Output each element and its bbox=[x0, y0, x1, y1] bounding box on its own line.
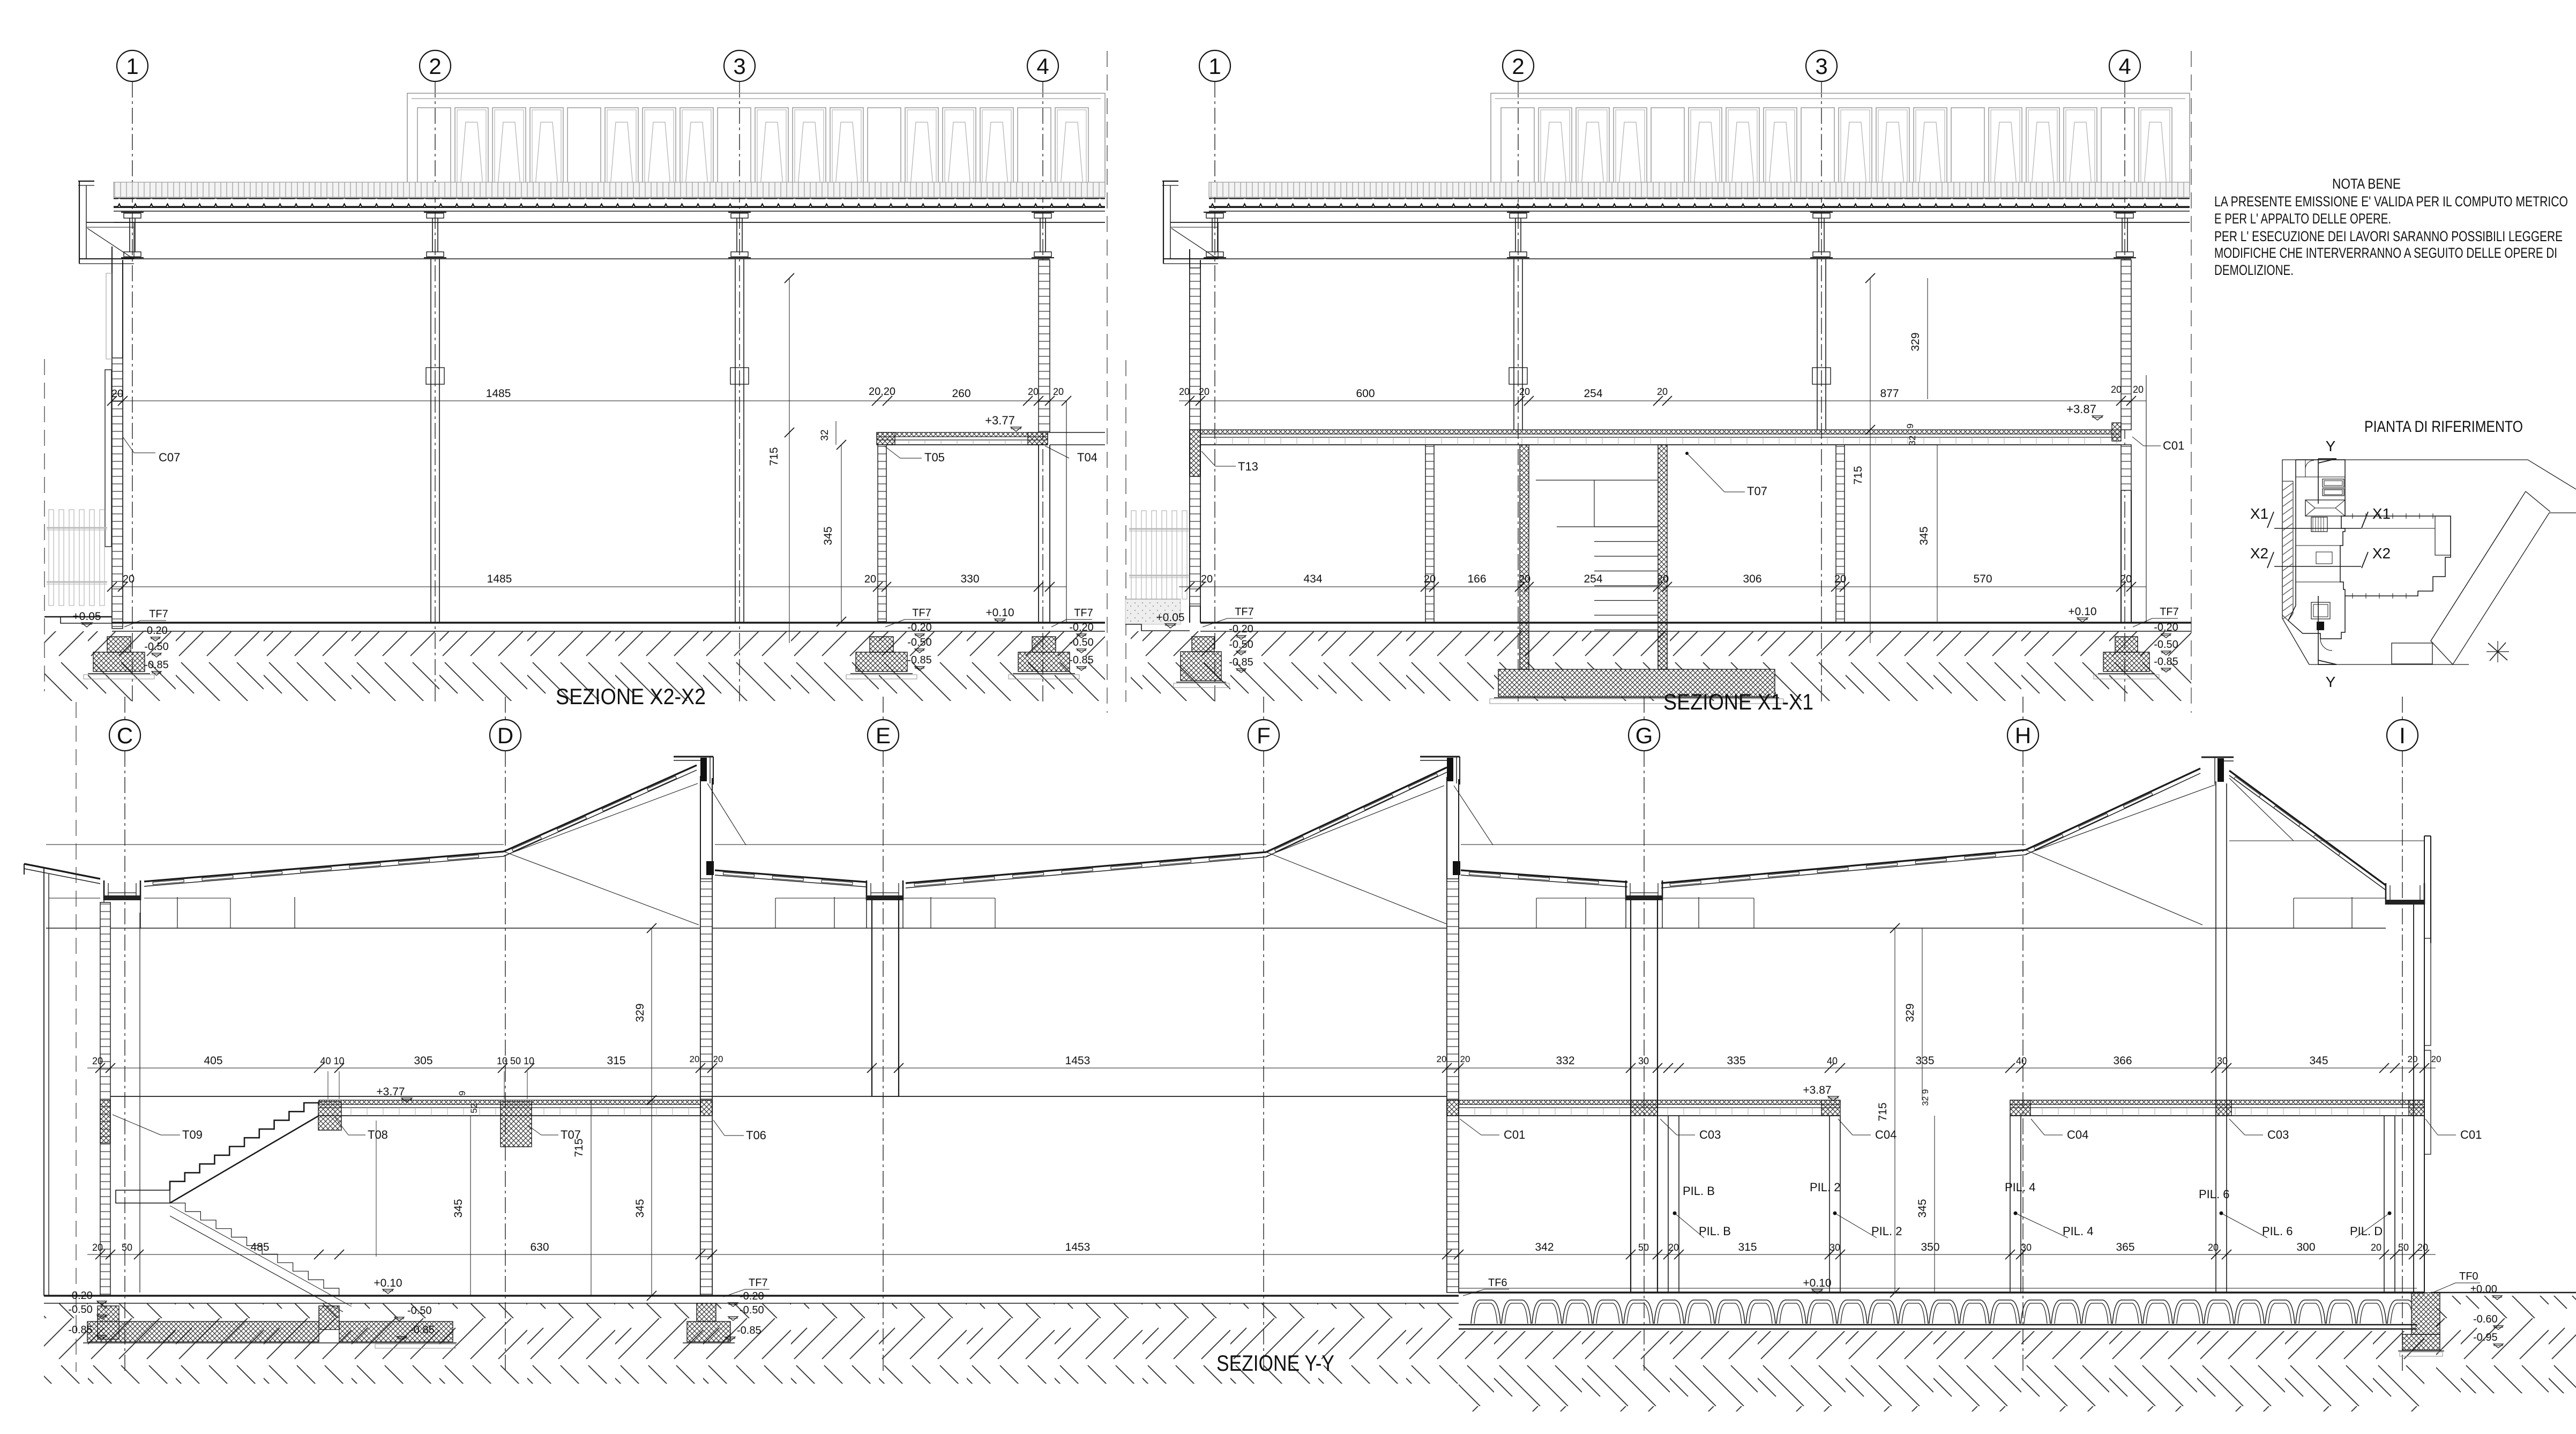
svg-text:10 50 10: 10 50 10 bbox=[497, 1056, 534, 1066]
svg-text:C01: C01 bbox=[2163, 439, 2184, 452]
svg-text:-0.85: -0.85 bbox=[68, 1324, 93, 1336]
svg-text:20: 20 bbox=[92, 1056, 103, 1066]
svg-text:32 9: 32 9 bbox=[1921, 1089, 1930, 1106]
svg-text:20: 20 bbox=[864, 573, 876, 585]
svg-text:30: 30 bbox=[2217, 1056, 2228, 1066]
svg-text:20: 20 bbox=[1657, 573, 1669, 585]
svg-text:50: 50 bbox=[2398, 1242, 2409, 1253]
svg-text:C: C bbox=[117, 723, 133, 748]
svg-text:C04: C04 bbox=[2067, 1128, 2088, 1141]
svg-text:PIL. 2: PIL. 2 bbox=[1810, 1181, 1840, 1194]
svg-text:+0.10: +0.10 bbox=[1803, 1277, 1831, 1289]
svg-text:C03: C03 bbox=[1699, 1128, 1721, 1141]
svg-text:TF0: TF0 bbox=[2459, 1271, 2478, 1282]
svg-text:20: 20 bbox=[111, 388, 123, 400]
svg-text:TF6: TF6 bbox=[1488, 1277, 1507, 1289]
svg-text:-0.50: -0.50 bbox=[907, 637, 932, 648]
svg-text:260: 260 bbox=[952, 387, 970, 400]
svg-text:3: 3 bbox=[1815, 54, 1827, 79]
svg-text:C01: C01 bbox=[2460, 1128, 2482, 1141]
svg-text:-0.50: -0.50 bbox=[407, 1305, 432, 1317]
svg-text:-0.20: -0.20 bbox=[1069, 622, 1094, 633]
svg-text:345: 345 bbox=[634, 1199, 646, 1218]
svg-text:40: 40 bbox=[2016, 1056, 2027, 1066]
svg-text:1485: 1485 bbox=[487, 573, 512, 585]
svg-text:G: G bbox=[1636, 723, 1653, 748]
svg-text:50: 50 bbox=[1638, 1242, 1649, 1253]
svg-text:D: D bbox=[497, 723, 513, 748]
svg-text:TF7: TF7 bbox=[149, 608, 168, 620]
svg-text:TF7: TF7 bbox=[1074, 607, 1093, 619]
svg-text:345: 345 bbox=[2309, 1055, 2328, 1067]
svg-text:20: 20 bbox=[1460, 1054, 1470, 1064]
svg-text:434: 434 bbox=[1303, 573, 1322, 585]
svg-text:TF7: TF7 bbox=[912, 607, 931, 619]
svg-text:MODIFICHE CHE INTERVERRANNO A: MODIFICHE CHE INTERVERRANNO A SEGUITO DE… bbox=[2214, 245, 2557, 261]
svg-text:PIANTA DI RIFERIMENTO: PIANTA DI RIFERIMENTO bbox=[2364, 418, 2523, 436]
svg-text:20: 20 bbox=[1053, 386, 1064, 397]
svg-text:300: 300 bbox=[2296, 1241, 2315, 1253]
svg-text:DEMOLIZIONE.: DEMOLIZIONE. bbox=[2214, 262, 2294, 278]
svg-text:166: 166 bbox=[1467, 573, 1486, 585]
svg-text:-0.20: -0.20 bbox=[143, 625, 168, 637]
svg-text:2: 2 bbox=[1512, 54, 1524, 79]
svg-text:20: 20 bbox=[1201, 573, 1213, 585]
svg-text:C07: C07 bbox=[159, 451, 180, 464]
svg-text:+3.87: +3.87 bbox=[2066, 402, 2096, 416]
svg-text:-0.95: -0.95 bbox=[2473, 1332, 2498, 1343]
svg-text:+0.05: +0.05 bbox=[1156, 611, 1184, 624]
svg-text:+0.10: +0.10 bbox=[985, 607, 1014, 619]
svg-text:4: 4 bbox=[2118, 54, 2131, 79]
svg-text:329: 329 bbox=[1904, 1003, 1916, 1022]
svg-text:TF7: TF7 bbox=[2160, 606, 2179, 618]
svg-text:2: 2 bbox=[429, 54, 441, 79]
svg-text:366: 366 bbox=[2113, 1055, 2132, 1067]
svg-text:T09: T09 bbox=[182, 1128, 203, 1141]
svg-text:3: 3 bbox=[733, 54, 745, 79]
svg-text:52: 52 bbox=[469, 1103, 479, 1114]
svg-text:Y: Y bbox=[2326, 438, 2336, 454]
svg-text:20: 20 bbox=[2371, 1242, 2381, 1253]
svg-text:C04: C04 bbox=[1875, 1128, 1896, 1141]
svg-text:20: 20 bbox=[1519, 573, 1530, 585]
svg-text:20: 20 bbox=[2111, 384, 2122, 395]
svg-text:20: 20 bbox=[1437, 1054, 1447, 1064]
svg-text:T04: T04 bbox=[1077, 451, 1097, 464]
svg-text:1453: 1453 bbox=[1065, 1055, 1091, 1067]
svg-text:32: 32 bbox=[1907, 436, 1917, 446]
svg-text:TF7: TF7 bbox=[1235, 606, 1254, 618]
svg-text:-0.50: -0.50 bbox=[144, 641, 169, 653]
svg-text:306: 306 bbox=[1743, 573, 1761, 585]
svg-text:T13: T13 bbox=[1238, 460, 1258, 473]
svg-text:330: 330 bbox=[960, 573, 979, 585]
svg-text:PIL. B: PIL. B bbox=[1699, 1224, 1731, 1238]
svg-text:570: 570 bbox=[1973, 573, 1992, 585]
svg-text:254: 254 bbox=[1584, 387, 1602, 400]
svg-text:335: 335 bbox=[1727, 1055, 1745, 1067]
svg-text:PIL. 4: PIL. 4 bbox=[2063, 1224, 2093, 1238]
svg-text:20: 20 bbox=[1424, 573, 1436, 585]
svg-text:X1: X1 bbox=[2372, 505, 2391, 522]
svg-text:NOTA BENE: NOTA BENE bbox=[2332, 176, 2401, 192]
svg-text:X1: X1 bbox=[2250, 505, 2268, 522]
svg-text:345: 345 bbox=[1916, 1199, 1929, 1218]
svg-text:315: 315 bbox=[607, 1055, 625, 1067]
svg-text:F: F bbox=[1257, 723, 1271, 748]
svg-text:315: 315 bbox=[1738, 1241, 1757, 1253]
svg-text:20: 20 bbox=[1657, 386, 1668, 397]
svg-text:PIL. D: PIL. D bbox=[2350, 1224, 2383, 1238]
svg-text:PER L' ESECUZIONE DEI LAVORI S: PER L' ESECUZIONE DEI LAVORI SARANNO POS… bbox=[2214, 228, 2563, 244]
svg-text:+0.05: +0.05 bbox=[72, 610, 101, 623]
svg-text:-0.50: -0.50 bbox=[2154, 639, 2178, 651]
svg-text:X2: X2 bbox=[2250, 545, 2268, 562]
svg-text:20,20: 20,20 bbox=[869, 386, 895, 398]
svg-text:-0.60: -0.60 bbox=[2473, 1313, 2498, 1325]
svg-text:9: 9 bbox=[457, 1091, 467, 1095]
svg-text:+3.77: +3.77 bbox=[376, 1086, 405, 1098]
svg-text:20: 20 bbox=[123, 573, 135, 585]
svg-text:630: 630 bbox=[530, 1241, 549, 1253]
svg-text:PIL. B: PIL. B bbox=[1683, 1184, 1715, 1198]
svg-text:-0.85: -0.85 bbox=[1069, 654, 1094, 666]
svg-text:SEZIONE X2-X2: SEZIONE X2-X2 bbox=[556, 684, 706, 709]
svg-text:40 10: 40 10 bbox=[320, 1056, 344, 1066]
svg-text:-0.85: -0.85 bbox=[410, 1324, 435, 1336]
svg-text:1453: 1453 bbox=[1065, 1241, 1091, 1253]
svg-text:405: 405 bbox=[204, 1055, 222, 1067]
svg-text:40: 40 bbox=[1827, 1056, 1838, 1066]
svg-text:Y: Y bbox=[2326, 674, 2336, 690]
svg-text:345: 345 bbox=[452, 1199, 465, 1218]
svg-text:715: 715 bbox=[768, 447, 780, 466]
svg-text:30: 30 bbox=[1638, 1056, 1649, 1066]
svg-text:600: 600 bbox=[1356, 387, 1375, 400]
svg-text:H: H bbox=[2015, 723, 2031, 748]
svg-text:PIL. 4: PIL. 4 bbox=[2005, 1181, 2035, 1194]
svg-text:20: 20 bbox=[2408, 1054, 2418, 1064]
svg-text:32: 32 bbox=[819, 429, 831, 440]
svg-text:-0.20: -0.20 bbox=[2154, 622, 2178, 633]
svg-text:345: 345 bbox=[1918, 526, 1930, 545]
svg-text:365: 365 bbox=[2116, 1241, 2134, 1253]
svg-text:50: 50 bbox=[122, 1242, 132, 1253]
svg-text:1: 1 bbox=[1208, 54, 1221, 79]
svg-text:PIL. 6: PIL. 6 bbox=[2262, 1224, 2293, 1238]
svg-text:-0.20: -0.20 bbox=[740, 1290, 764, 1302]
svg-text:20: 20 bbox=[1199, 386, 1209, 397]
svg-text:342: 342 bbox=[1535, 1241, 1554, 1253]
svg-text:-0.20: -0.20 bbox=[1229, 623, 1253, 635]
svg-text:20: 20 bbox=[1834, 573, 1846, 585]
svg-text:20: 20 bbox=[1668, 1242, 1679, 1253]
svg-text:+3.77: +3.77 bbox=[985, 414, 1015, 427]
svg-text:20: 20 bbox=[2417, 1242, 2428, 1253]
svg-text:1: 1 bbox=[126, 54, 138, 79]
svg-text:I: I bbox=[2399, 723, 2406, 748]
svg-text:9: 9 bbox=[1905, 423, 1915, 428]
svg-text:-0.85: -0.85 bbox=[2154, 656, 2178, 668]
svg-text:+3.87: +3.87 bbox=[1803, 1084, 1831, 1096]
svg-text:30: 30 bbox=[2021, 1242, 2032, 1253]
svg-text:C01: C01 bbox=[1504, 1128, 1525, 1141]
svg-text:PIL. 6: PIL. 6 bbox=[2199, 1187, 2229, 1201]
svg-text:-0.20: -0.20 bbox=[907, 622, 932, 633]
svg-text:E PER L' APPALTO DELLE OPERE.: E PER L' APPALTO DELLE OPERE. bbox=[2214, 211, 2391, 227]
svg-text:715: 715 bbox=[1852, 466, 1864, 484]
svg-text:-0.50: -0.50 bbox=[1229, 639, 1253, 651]
svg-text:SEZIONE Y-Y: SEZIONE Y-Y bbox=[1216, 1350, 1334, 1376]
svg-text:-0.50: -0.50 bbox=[68, 1304, 93, 1316]
svg-text:-0.85: -0.85 bbox=[907, 654, 932, 666]
svg-text:877: 877 bbox=[1880, 387, 1899, 400]
svg-text:350: 350 bbox=[1921, 1241, 1939, 1253]
svg-text:20: 20 bbox=[92, 1242, 103, 1253]
svg-text:485: 485 bbox=[250, 1241, 269, 1253]
svg-text:-0.20: -0.20 bbox=[68, 1290, 93, 1302]
svg-text:305: 305 bbox=[414, 1055, 432, 1067]
svg-text:T06: T06 bbox=[746, 1129, 766, 1142]
svg-text:20: 20 bbox=[713, 1054, 723, 1064]
svg-text:C03: C03 bbox=[2267, 1128, 2289, 1141]
svg-text:335: 335 bbox=[1915, 1055, 1934, 1067]
svg-text:-0.85: -0.85 bbox=[1229, 656, 1253, 668]
svg-text:715: 715 bbox=[1877, 1102, 1889, 1121]
svg-text:20: 20 bbox=[1179, 386, 1190, 397]
svg-text:-0.85: -0.85 bbox=[737, 1325, 761, 1336]
svg-text:20: 20 bbox=[690, 1054, 700, 1064]
svg-text:30: 30 bbox=[1830, 1242, 1840, 1253]
svg-text:20: 20 bbox=[1519, 386, 1530, 397]
svg-text:332: 332 bbox=[1556, 1055, 1574, 1067]
svg-text:1485: 1485 bbox=[486, 387, 511, 400]
svg-text:E: E bbox=[876, 723, 891, 748]
svg-text:-0.50: -0.50 bbox=[740, 1304, 764, 1316]
svg-text:715: 715 bbox=[573, 1138, 585, 1157]
svg-text:345: 345 bbox=[822, 526, 834, 545]
svg-text:20: 20 bbox=[2208, 1242, 2219, 1253]
svg-text:-0.50: -0.50 bbox=[1069, 637, 1094, 648]
svg-text:LA PRESENTE EMISSIONE E' VALID: LA PRESENTE EMISSIONE E' VALIDA PER IL C… bbox=[2214, 193, 2568, 210]
svg-text:SEZIONE X1-X1: SEZIONE X1-X1 bbox=[1663, 689, 1813, 714]
svg-text:4: 4 bbox=[1036, 54, 1049, 79]
svg-text:T08: T08 bbox=[368, 1128, 388, 1141]
svg-text:TF7: TF7 bbox=[749, 1277, 768, 1289]
svg-text:PIL. 2: PIL. 2 bbox=[1871, 1224, 1902, 1238]
svg-text:+0.10: +0.10 bbox=[2068, 606, 2096, 618]
svg-text:254: 254 bbox=[1584, 573, 1602, 585]
svg-text:-0.85: -0.85 bbox=[144, 659, 169, 671]
svg-text:329: 329 bbox=[634, 1003, 646, 1022]
svg-text:20: 20 bbox=[2120, 573, 2132, 585]
svg-text:T07: T07 bbox=[1747, 484, 1767, 498]
svg-text:+0.10: +0.10 bbox=[374, 1277, 402, 1289]
svg-text:20: 20 bbox=[1028, 386, 1039, 397]
svg-text:329: 329 bbox=[1909, 332, 1922, 351]
svg-text:±0.00: ±0.00 bbox=[2470, 1283, 2497, 1295]
svg-text:T05: T05 bbox=[924, 451, 945, 464]
svg-text:20: 20 bbox=[2133, 384, 2144, 395]
svg-text:20: 20 bbox=[2431, 1054, 2441, 1064]
svg-text:X2: X2 bbox=[2372, 545, 2391, 562]
